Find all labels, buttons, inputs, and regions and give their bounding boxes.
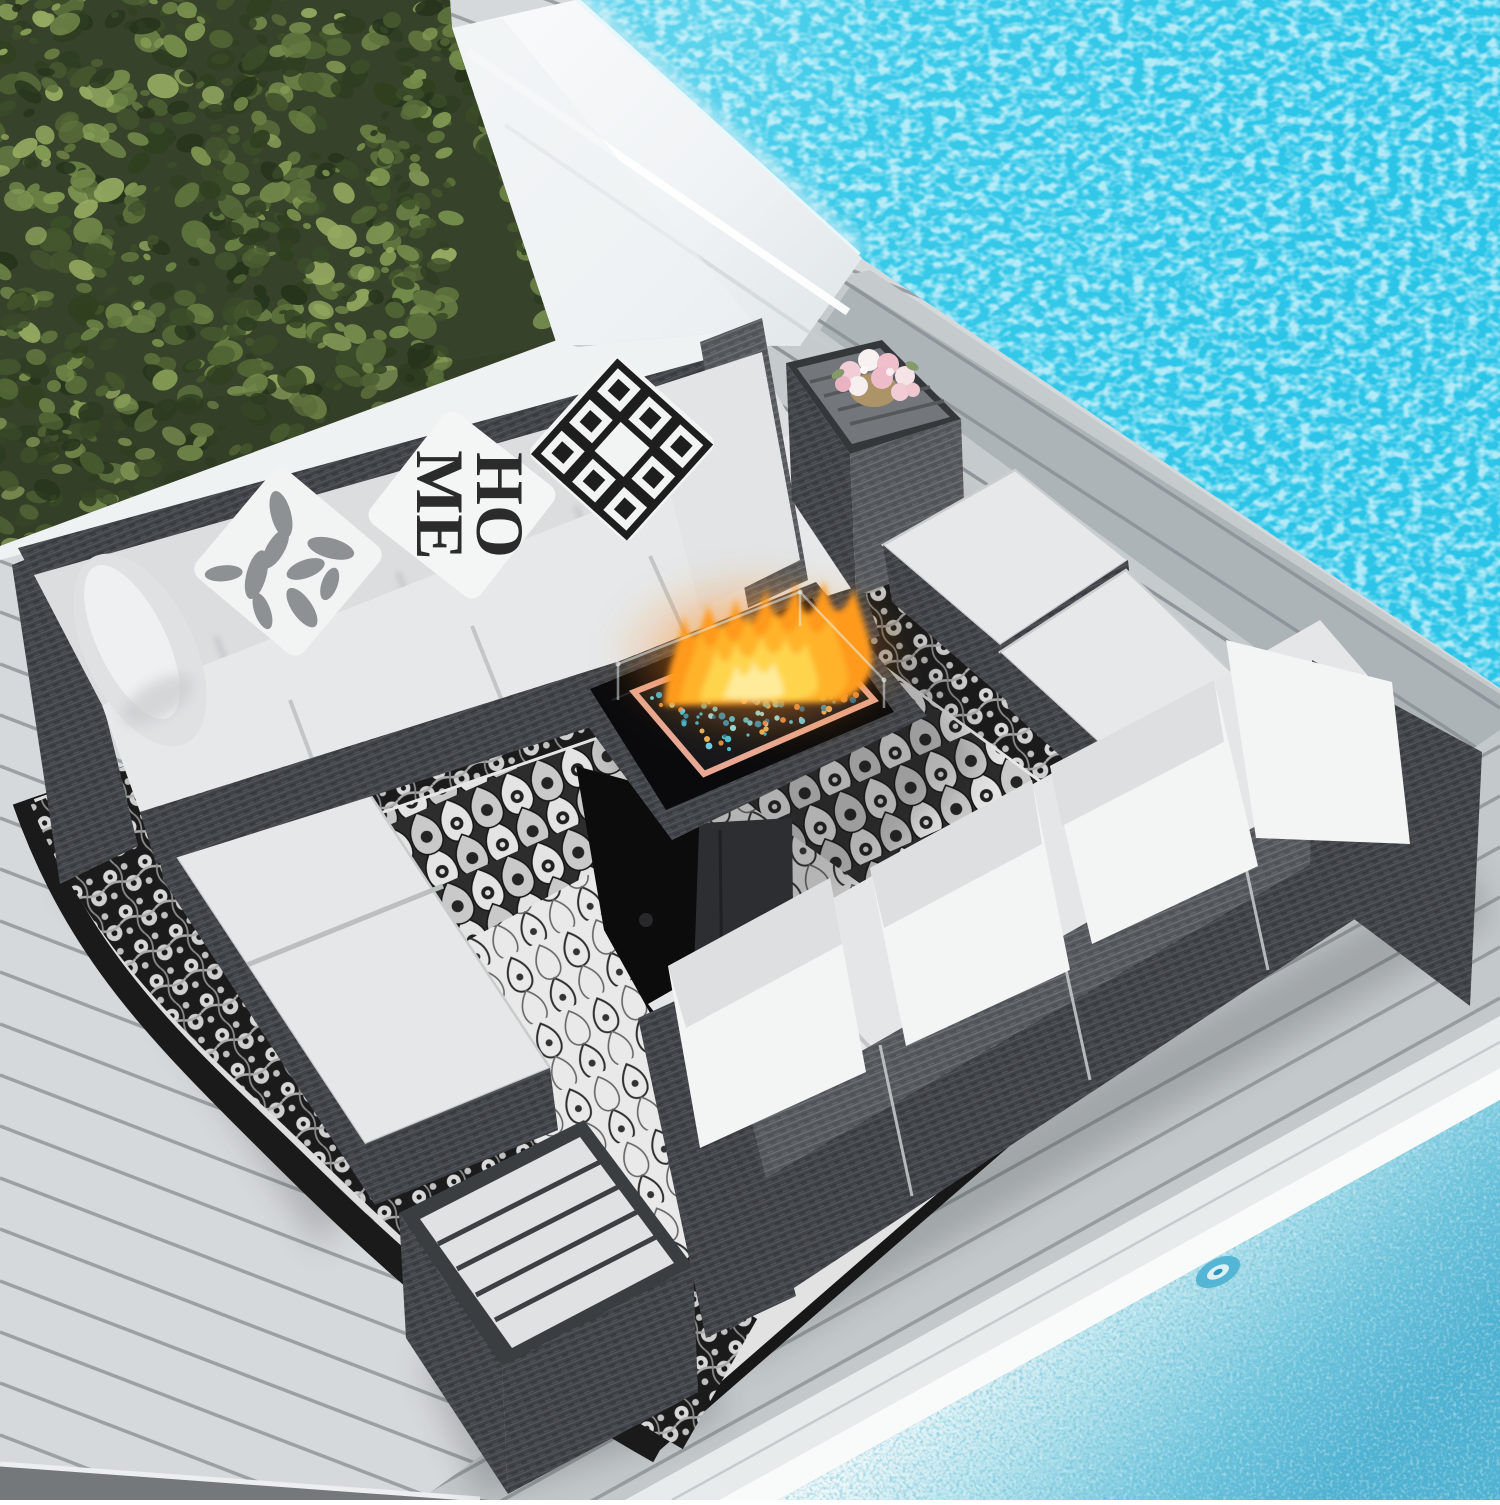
svg-text:ME: ME	[402, 450, 478, 560]
